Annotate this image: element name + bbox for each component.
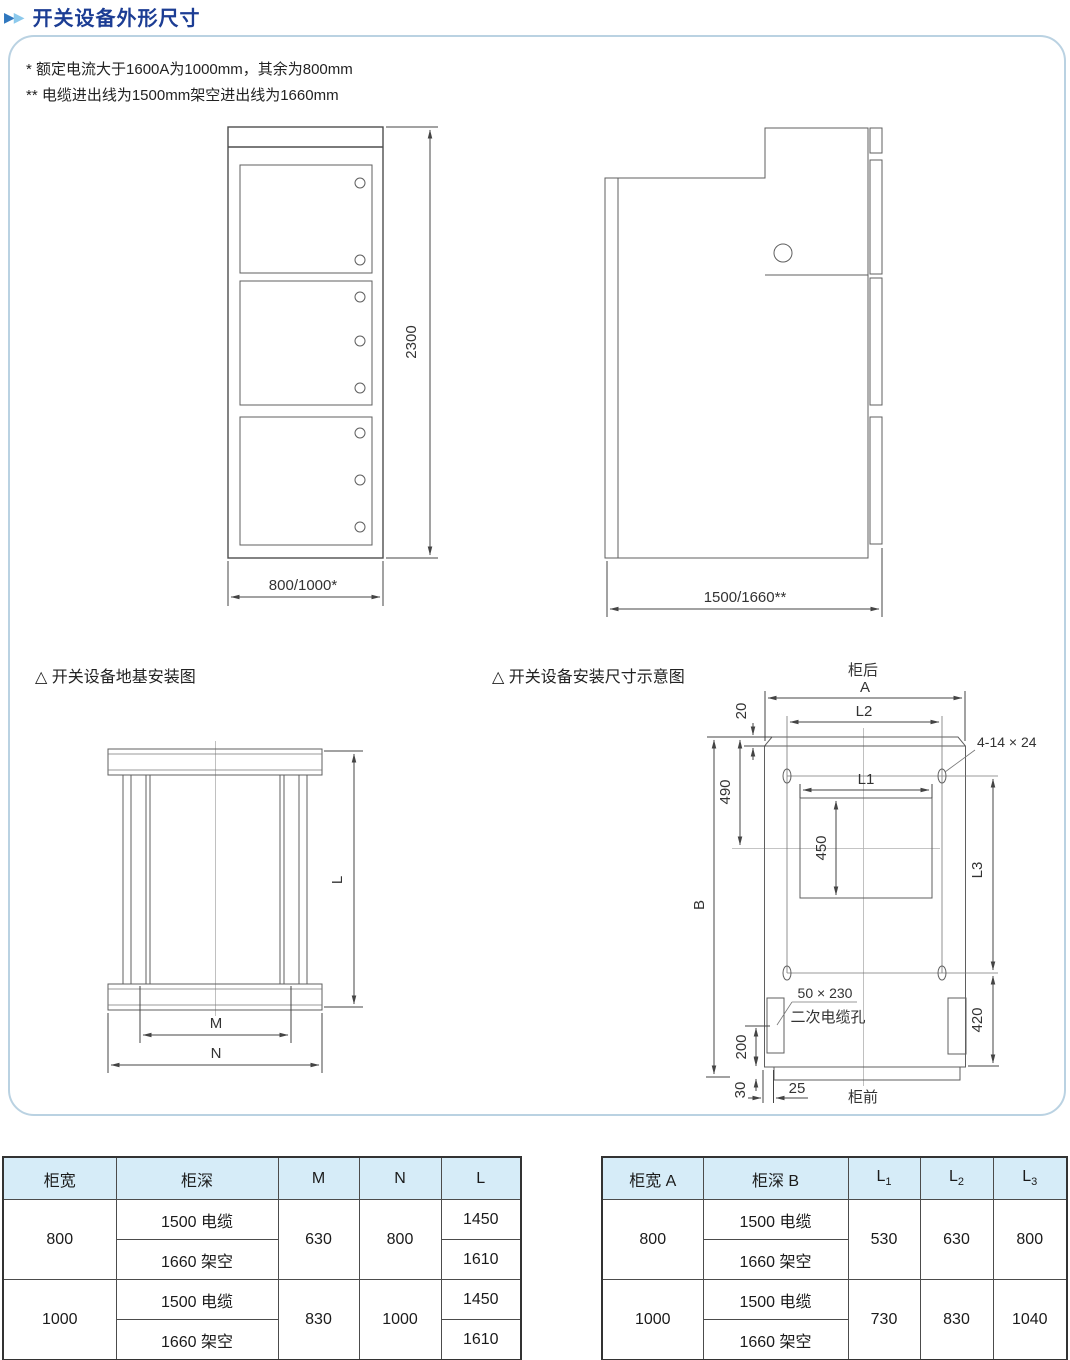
cell-depth: 1500 电缆 xyxy=(116,1200,278,1240)
front-label: 柜前 xyxy=(848,1089,878,1106)
dimension-table-foundation: 柜宽 柜深 M N L 800 1500 电缆 630 800 1450 166… xyxy=(2,1156,522,1360)
cell-l: 1450 xyxy=(441,1280,521,1320)
dim-490: 490 xyxy=(717,779,734,804)
cell-l1: 730 xyxy=(848,1280,920,1360)
mounting-holes xyxy=(783,769,946,980)
col-header-width-a: 柜宽 A xyxy=(602,1157,703,1200)
cell-depth: 1500 电缆 xyxy=(116,1280,278,1320)
cell-l3: 800 xyxy=(993,1200,1067,1280)
cable-hole-spec: 50 × 230 xyxy=(798,985,853,1001)
cell-width: 1000 xyxy=(3,1280,116,1360)
dim-200: 200 xyxy=(733,1034,750,1059)
secondary-cable-holes xyxy=(767,998,966,1054)
dim-l1: L1 xyxy=(858,771,875,788)
foundation-dim-n: N xyxy=(211,1045,222,1062)
table-row: 800 1500 电缆 530 630 800 xyxy=(602,1200,1067,1240)
col-header-width: 柜宽 xyxy=(3,1157,116,1200)
cell-l: 1610 xyxy=(441,1240,521,1280)
table-row: 1000 1500 电缆 830 1000 1450 xyxy=(3,1280,521,1320)
cell-depth-b: 1660 架空 xyxy=(703,1240,848,1280)
rear-label: 柜后 xyxy=(848,662,878,679)
front-width-dim: 800/1000* xyxy=(269,577,338,594)
dim-450: 450 xyxy=(813,835,830,860)
cell-m: 830 xyxy=(278,1280,359,1360)
header-l2-main: L xyxy=(949,1168,958,1185)
foundation-dim-m: M xyxy=(210,1015,223,1032)
cell-m: 630 xyxy=(278,1200,359,1280)
dim-25: 25 xyxy=(789,1080,806,1097)
cell-width: 800 xyxy=(3,1200,116,1280)
cell-width-a: 1000 xyxy=(602,1280,703,1360)
col-header-l2: L2 xyxy=(920,1157,993,1200)
cell-l: 1450 xyxy=(441,1200,521,1240)
cell-l: 1610 xyxy=(441,1320,521,1360)
dimension-table-installation: 柜宽 A 柜深 B L1 L2 L3 800 1500 电缆 530 630 8… xyxy=(601,1156,1068,1360)
col-header-depth: 柜深 xyxy=(116,1157,278,1200)
side-depth-dim: 1500/1660** xyxy=(704,589,787,606)
cell-n: 800 xyxy=(359,1200,441,1280)
col-header-m: M xyxy=(278,1157,359,1200)
cell-l3: 1040 xyxy=(993,1280,1067,1360)
foundation-dim-l: L xyxy=(329,876,346,884)
front-view-drawing: 2300 800/1000* xyxy=(228,127,438,606)
cable-hole-name: 二次电缆孔 xyxy=(790,1009,865,1026)
col-header-l1: L1 xyxy=(848,1157,920,1200)
dim-420: 420 xyxy=(969,1007,986,1032)
channel-rails xyxy=(123,775,307,984)
header-l2-sub: 2 xyxy=(958,1177,964,1189)
col-header-depth-b: 柜深 B xyxy=(703,1157,848,1200)
hinge-strips xyxy=(870,128,882,544)
table-row: 1000 1500 电缆 730 830 1040 xyxy=(602,1280,1067,1320)
cell-depth-b: 1660 架空 xyxy=(703,1320,848,1360)
dim-l2: L2 xyxy=(856,703,873,720)
cell-l2: 630 xyxy=(920,1200,993,1280)
foundation-caption: △ 开关设备地基安装图 xyxy=(35,668,196,686)
cell-depth: 1660 架空 xyxy=(116,1320,278,1360)
page: ▶ ▶ 开关设备外形尺寸 * 额定电流大于1600A为1000mm，其余为800… xyxy=(0,0,1070,1360)
cell-depth-b: 1500 电缆 xyxy=(703,1200,848,1240)
cell-width-a: 800 xyxy=(602,1200,703,1280)
installation-caption: △ 开关设备安装尺寸示意图 xyxy=(492,667,685,686)
header-l3-main: L xyxy=(1022,1168,1031,1185)
door-knob-circles xyxy=(355,178,365,532)
col-header-n: N xyxy=(359,1157,441,1200)
hole-spec-label: 4-14 × 24 xyxy=(977,734,1037,750)
table-row: 800 1500 电缆 630 800 1450 xyxy=(3,1200,521,1240)
table-header-row: 柜宽 柜深 M N L xyxy=(3,1157,521,1200)
dim-b: B xyxy=(691,900,708,910)
dim-20: 20 xyxy=(733,703,750,720)
cell-l2: 830 xyxy=(920,1280,993,1360)
header-l1-sub: 1 xyxy=(885,1177,891,1189)
installation-diagram: △ 开关设备安装尺寸示意图 柜后 柜前 4-14 × 24 xyxy=(492,662,1037,1106)
dim-a: A xyxy=(860,679,870,696)
table-header-row: 柜宽 A 柜深 B L1 L2 L3 xyxy=(602,1157,1067,1200)
dim-l3: L3 xyxy=(969,862,986,879)
cell-l1: 530 xyxy=(848,1200,920,1280)
cell-depth-b: 1500 电缆 xyxy=(703,1280,848,1320)
cell-n: 1000 xyxy=(359,1280,441,1360)
col-header-l: L xyxy=(441,1157,521,1200)
col-header-l3: L3 xyxy=(993,1157,1067,1200)
side-view-drawing: 1500/1660** xyxy=(605,128,882,617)
foundation-diagram: △ 开关设备地基安装图 L M N xyxy=(35,668,363,1073)
header-l3-sub: 3 xyxy=(1031,1177,1037,1189)
dim-30: 30 xyxy=(732,1082,749,1099)
cell-depth: 1660 架空 xyxy=(116,1240,278,1280)
interlock-hole xyxy=(774,244,792,262)
front-height-dim: 2300 xyxy=(403,325,420,358)
